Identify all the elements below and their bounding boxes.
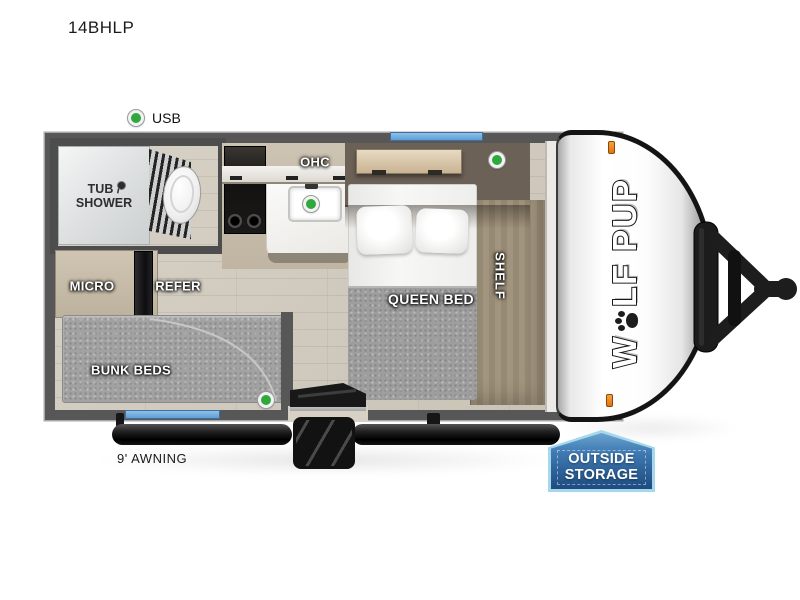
awning-tube-right [352, 424, 560, 445]
outside-storage-line1: OUTSIDE [568, 451, 635, 467]
burner-icon [228, 214, 242, 228]
shelf-hinge-icon [428, 170, 442, 175]
refrigerator [134, 251, 153, 318]
entry-step [293, 417, 355, 469]
shelf-label: SHELF [493, 252, 508, 300]
micro-label: MICRO [70, 279, 115, 294]
window-bed [390, 132, 483, 141]
awning-tube-left [112, 424, 292, 445]
bunk-curve-line [62, 315, 288, 403]
cabinet-hinge-icon [230, 176, 242, 180]
cabinet-hinge-icon [286, 176, 298, 180]
bunk-beds-label: BUNK BEDS [91, 363, 171, 378]
outside-storage-line2: STORAGE [565, 467, 639, 483]
wardrobe-shelf-cabinet [470, 200, 546, 405]
awning-label: 9' AWNING [117, 451, 187, 466]
hitch-tongue [690, 210, 800, 370]
queen-bed-label: QUEEN BED [388, 291, 474, 307]
window-bunk [125, 410, 220, 419]
usb-legend: USB [128, 110, 181, 126]
usb-port-indicator-icon [303, 196, 319, 212]
shelf-hinge-icon [372, 170, 386, 175]
wolfpup-logo: W LF PUP [602, 148, 648, 398]
usb-legend-icon [128, 110, 144, 126]
tub-shower-label-line1: TUB / [88, 182, 121, 196]
pillow [356, 205, 413, 255]
kitchen-counter-base [268, 253, 352, 263]
floorplan-canvas: TUB / SHOWER OHC [0, 0, 800, 600]
tub-shower-label: TUB / SHOWER [58, 146, 150, 245]
outside-storage-badge-face: OUTSIDE STORAGE [551, 433, 652, 489]
ohc-label: OHC [300, 155, 330, 170]
shower-head-icon [117, 181, 126, 190]
refer-label: REFER [155, 279, 201, 294]
usb-port-indicator-icon [258, 392, 274, 408]
page-title: 14BHLP [68, 18, 134, 38]
tub-shower-label-line2: SHOWER [76, 196, 132, 210]
cabinet-hinge-icon [333, 176, 345, 180]
pillow [415, 208, 469, 254]
brand-letters: LF [606, 263, 644, 307]
paw-print-icon [613, 310, 641, 332]
burner-icon [247, 214, 261, 228]
brand-letter: W [606, 335, 644, 368]
usb-legend-label: USB [152, 110, 181, 126]
brand-letters: PUP [606, 178, 644, 252]
overhead-cabinet [222, 166, 352, 184]
usb-port-indicator-icon [489, 152, 505, 168]
